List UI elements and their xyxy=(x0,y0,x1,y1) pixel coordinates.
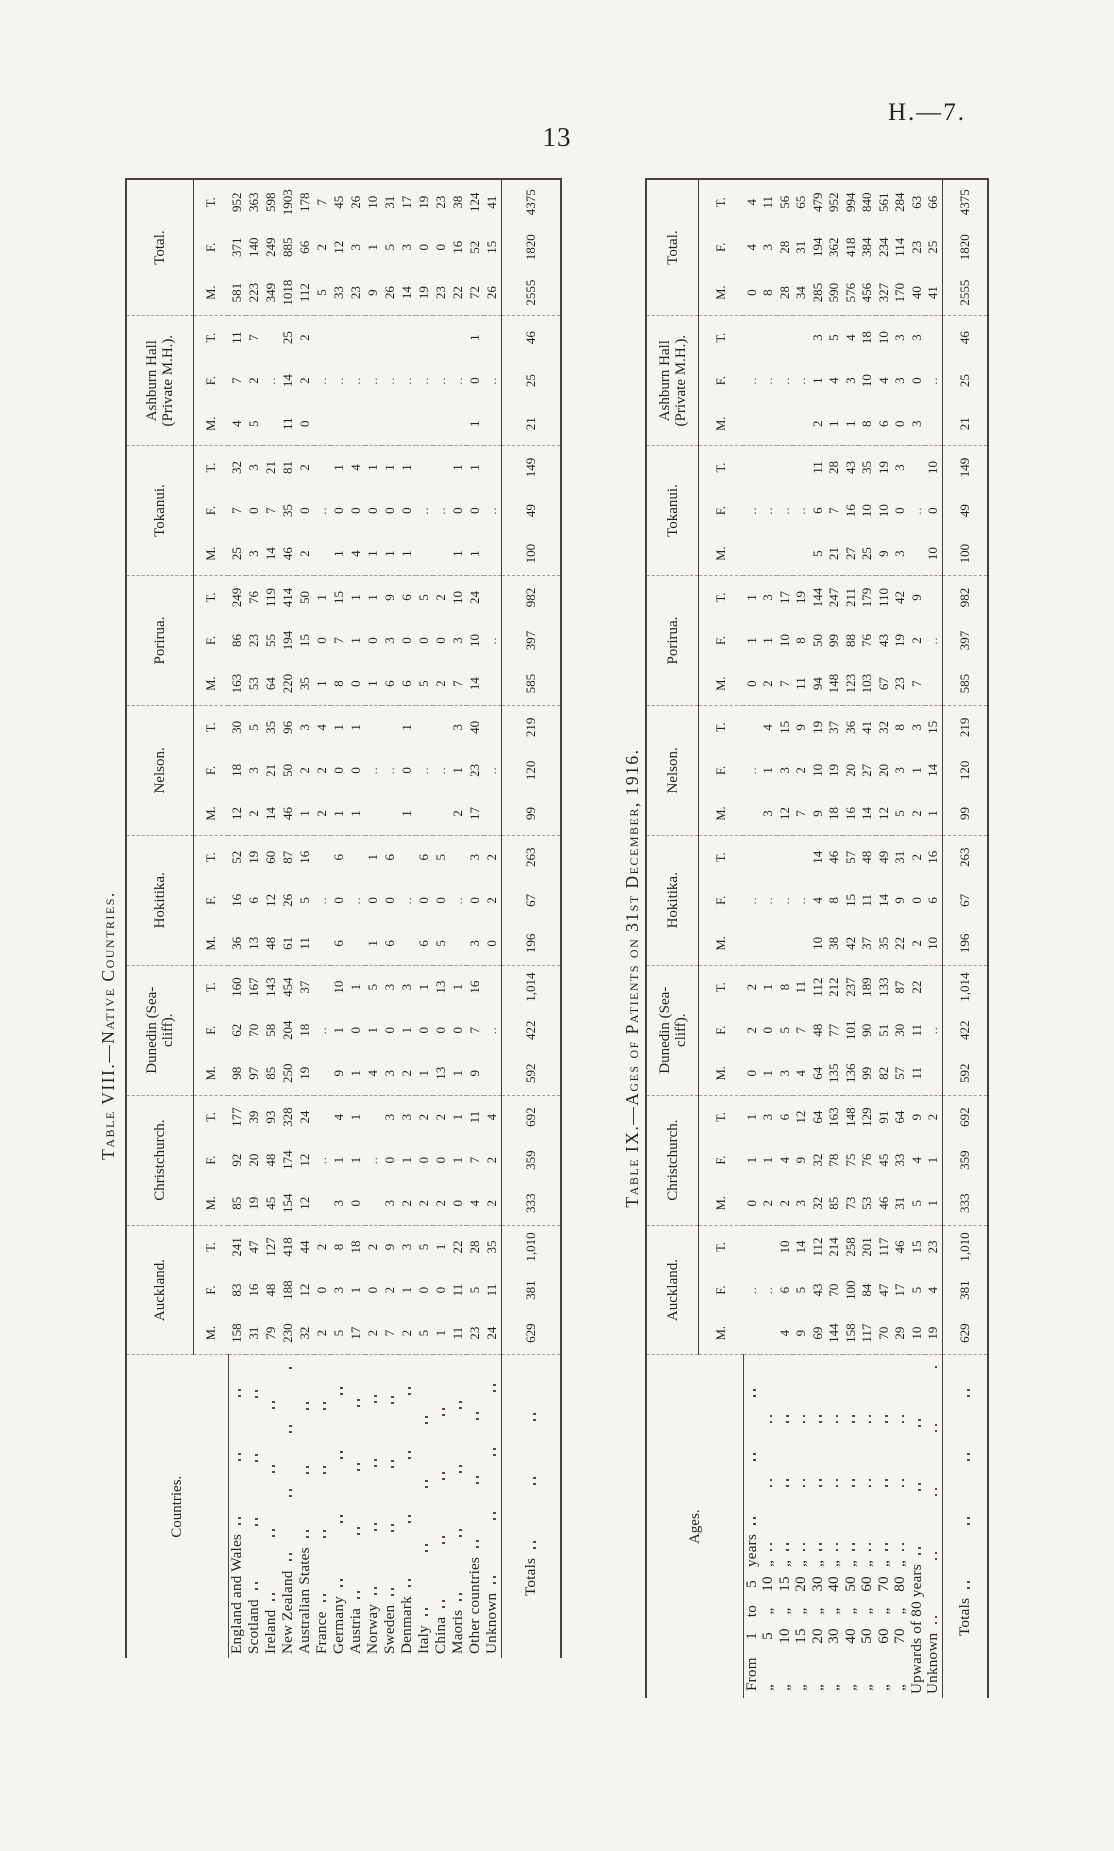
data-cell: 23 xyxy=(467,749,484,792)
data-cell: 8 xyxy=(793,619,810,662)
row-label-part: „ xyxy=(843,1599,859,1623)
data-cell: 1 xyxy=(743,619,760,662)
data-cell: 11 xyxy=(909,1052,926,1095)
data-cell: 9 xyxy=(810,792,827,835)
data-cell: 34 xyxy=(793,270,810,316)
data-cell: 237 xyxy=(843,965,860,1008)
data-cell: 48 xyxy=(263,1138,280,1181)
totals-cell: 1820 xyxy=(501,225,561,271)
data-cell: 4 xyxy=(793,1052,810,1095)
data-cell: 7 xyxy=(467,1009,484,1052)
data-cell: 241 xyxy=(228,1225,246,1268)
data-cell xyxy=(399,402,416,445)
data-cell: 75 xyxy=(843,1138,860,1181)
data-cell: 35 xyxy=(297,662,314,705)
data-cell: 1 xyxy=(450,1052,467,1095)
data-cell: 37 xyxy=(859,922,876,965)
row-label: From1to5years xyxy=(744,1356,760,1699)
row-label-text: Unknown xyxy=(484,1593,500,1654)
data-cell xyxy=(348,316,365,359)
data-cell: 2 xyxy=(743,965,760,1008)
row-label-part: „ xyxy=(826,1599,842,1623)
row-label-text: Germany xyxy=(331,1596,347,1654)
data-cell: .. xyxy=(314,1138,331,1181)
data-cell: 14 xyxy=(399,270,416,316)
data-cell: 952 xyxy=(228,179,246,225)
subcolumn-header: M. xyxy=(194,662,229,705)
data-cell: 952 xyxy=(826,179,843,225)
table-row: From1to5years..011022....011....044 xyxy=(743,179,760,1698)
data-cell: 23 xyxy=(348,270,365,316)
data-cell xyxy=(793,835,810,878)
subcolumn-header: F. xyxy=(699,619,744,662)
data-cell: 20 xyxy=(246,1138,263,1181)
row-label: „30„40„ xyxy=(826,1356,842,1699)
data-cell: 46 xyxy=(892,1225,909,1268)
dot-leader xyxy=(272,1366,275,1601)
data-cell xyxy=(450,835,467,878)
data-cell: 0 xyxy=(416,879,433,922)
data-cell: 41 xyxy=(859,705,876,748)
data-cell: 1 xyxy=(467,402,484,445)
data-cell: 247 xyxy=(826,576,843,619)
data-cell xyxy=(743,532,760,575)
data-cell: 53 xyxy=(246,662,263,705)
row-label-text: Totals xyxy=(522,1558,540,1596)
data-cell: 3 xyxy=(382,1095,399,1138)
table-row: Other countries2352847119716303172340141… xyxy=(467,179,484,1658)
totals-row: Totals6293811,0103333596925924221,014196… xyxy=(942,179,988,1698)
data-cell: 1 xyxy=(314,662,331,705)
subcolumn-header: F. xyxy=(194,359,229,402)
data-cell xyxy=(314,1052,331,1095)
data-cell: 133 xyxy=(876,965,893,1008)
data-cell: 10 xyxy=(467,619,484,662)
table-row: Denmark213213213..101606101..14317 xyxy=(399,179,416,1658)
column-header-total: Total. xyxy=(646,179,699,316)
data-cell: 55 xyxy=(263,619,280,662)
data-cell: 0 xyxy=(348,662,365,705)
data-cell: 3 xyxy=(246,446,263,489)
row-label-part: „ xyxy=(810,1560,826,1569)
data-cell: 561 xyxy=(876,179,893,225)
data-cell: 64 xyxy=(810,1095,827,1138)
data-cell: 2 xyxy=(314,792,331,835)
data-cell: 41 xyxy=(484,179,502,225)
data-cell: 35 xyxy=(280,489,297,532)
data-cell: 35 xyxy=(263,705,280,748)
totals-cell: 1,014 xyxy=(942,965,988,1008)
data-cell: 50 xyxy=(297,576,314,619)
data-cell xyxy=(365,792,382,835)
data-cell: 19 xyxy=(892,619,909,662)
data-cell: 96 xyxy=(280,705,297,748)
data-cell: 2 xyxy=(793,749,810,792)
column-header-tokanui: Tokanui. xyxy=(646,446,699,576)
blank-cell-dots: .. xyxy=(745,766,759,774)
data-cell: 1 xyxy=(348,576,365,619)
data-cell xyxy=(760,1312,777,1355)
data-cell: 31 xyxy=(892,835,909,878)
row-label-part: 40 xyxy=(826,1569,842,1599)
subcolumn-header: T. xyxy=(699,965,744,1008)
data-cell xyxy=(348,402,365,445)
row-label-part: 60 xyxy=(876,1623,892,1649)
data-cell: 4 xyxy=(348,446,365,489)
data-cell: 6 xyxy=(382,662,399,705)
column-header-ashburn: Ashburn Hall (Private M.H.). xyxy=(126,316,194,446)
data-cell xyxy=(760,1225,777,1268)
data-cell: 170 xyxy=(892,270,909,316)
data-cell: 3 xyxy=(892,359,909,402)
data-cell: 24 xyxy=(297,1095,314,1138)
data-cell: 1 xyxy=(925,792,942,835)
data-cell xyxy=(331,402,348,445)
data-cell: 10 xyxy=(450,576,467,619)
data-cell: 2 xyxy=(484,835,502,878)
data-cell: 35 xyxy=(859,446,876,489)
dot-leader xyxy=(819,1366,822,1552)
data-cell: 3 xyxy=(760,576,777,619)
data-cell: 6 xyxy=(331,922,348,965)
data-cell: 36 xyxy=(843,705,860,748)
data-cell: 85 xyxy=(263,1052,280,1095)
table-viii-title: Table VIII.—Native Countries. xyxy=(95,178,125,1658)
data-cell: 4 xyxy=(843,316,860,359)
data-cell: 201 xyxy=(859,1225,876,1268)
data-cell: 70 xyxy=(246,1009,263,1052)
data-cell: 33 xyxy=(892,1138,909,1181)
data-cell: 40 xyxy=(467,705,484,748)
data-cell: 15 xyxy=(331,576,348,619)
subcolumn-header: T. xyxy=(194,446,229,489)
data-cell xyxy=(263,316,280,359)
data-cell: 5 xyxy=(314,270,331,316)
data-cell: 2 xyxy=(314,1312,331,1355)
dot-leader xyxy=(836,1366,839,1552)
subcolumn-header: F. xyxy=(194,879,229,922)
data-cell: 479 xyxy=(810,179,827,225)
row-label-part: 70 xyxy=(892,1623,908,1649)
data-cell: 2 xyxy=(399,1052,416,1095)
totals-cell: 67 xyxy=(501,879,561,922)
data-cell: 25 xyxy=(859,532,876,575)
blank-cell-dots: .. xyxy=(400,896,414,904)
row-label-part: „ xyxy=(859,1560,875,1569)
row-label: Sweden xyxy=(382,1356,398,1659)
blank-cell-dots: .. xyxy=(926,637,940,645)
data-cell xyxy=(925,316,942,359)
data-cell: 9 xyxy=(793,1138,810,1181)
row-label: England and Wales xyxy=(229,1356,245,1659)
data-cell: 3 xyxy=(810,316,827,359)
data-cell: 9 xyxy=(331,1052,348,1095)
row-label: Italy xyxy=(416,1356,432,1659)
row-label-part: „ xyxy=(760,1599,776,1623)
data-cell: 3 xyxy=(331,1268,348,1311)
dot-leader xyxy=(425,1366,428,1617)
row-label: „40„50„ xyxy=(843,1356,859,1699)
data-cell: .. xyxy=(433,489,450,532)
data-cell: 327 xyxy=(876,270,893,316)
data-cell: 50 xyxy=(280,749,297,792)
column-header-auckland: Auckland. xyxy=(646,1225,699,1355)
totals-cell: 99 xyxy=(942,792,988,835)
subcolumn-header: M. xyxy=(699,270,744,316)
totals-cell: 2555 xyxy=(501,270,561,316)
data-cell: 46 xyxy=(826,835,843,878)
data-cell: 10 xyxy=(331,965,348,1008)
data-cell xyxy=(760,446,777,489)
subcolumn-header: T. xyxy=(194,576,229,619)
data-cell: .. xyxy=(433,749,450,792)
data-cell: 4 xyxy=(777,1138,794,1181)
data-cell: 19 xyxy=(246,835,263,878)
dot-leader xyxy=(902,1366,905,1552)
row-label-text: China xyxy=(433,1617,449,1654)
data-cell: 3 xyxy=(760,1095,777,1138)
data-cell xyxy=(925,965,942,1008)
data-cell: 3 xyxy=(382,1052,399,1095)
data-cell: 3 xyxy=(843,359,860,402)
data-cell: 5 xyxy=(416,576,433,619)
row-label-part: „ xyxy=(892,1649,908,1694)
data-cell xyxy=(416,446,433,489)
data-cell: 178 xyxy=(297,179,314,225)
row-label-text: New Zealand xyxy=(280,1570,296,1654)
data-cell xyxy=(365,705,382,748)
data-cell: .. xyxy=(925,1009,942,1052)
subcolumn-header: T. xyxy=(699,705,744,748)
row-label-part: „ xyxy=(793,1599,809,1623)
data-cell: 1 xyxy=(416,965,433,1008)
data-cell: 1 xyxy=(433,1312,450,1355)
data-cell: 1 xyxy=(467,532,484,575)
data-cell: 81 xyxy=(280,446,297,489)
data-cell: 1 xyxy=(399,1138,416,1181)
data-cell: 2 xyxy=(297,446,314,489)
data-cell: 18 xyxy=(826,792,843,835)
data-cell: 1 xyxy=(382,532,399,575)
totals-cell: 196 xyxy=(501,922,561,965)
row-label: Australian States xyxy=(297,1356,313,1659)
row-label: China xyxy=(433,1356,449,1659)
data-cell: 0 xyxy=(416,1138,433,1181)
data-cell: 41 xyxy=(925,270,942,316)
data-cell: 7 xyxy=(246,316,263,359)
data-cell: 101 xyxy=(843,1009,860,1052)
data-cell: 27 xyxy=(843,532,860,575)
data-cell xyxy=(382,402,399,445)
data-cell: 53 xyxy=(859,1182,876,1225)
totals-cell: 1,010 xyxy=(942,1225,988,1268)
totals-cell: 196 xyxy=(942,922,988,965)
dot-leader xyxy=(967,1366,970,1589)
data-cell xyxy=(365,1182,382,1225)
blank-cell-dots: .. xyxy=(745,1286,759,1294)
data-cell: 43 xyxy=(876,619,893,662)
dot-leader xyxy=(753,1366,756,1525)
data-cell: 4 xyxy=(777,1312,794,1355)
data-cell: 12 xyxy=(876,792,893,835)
data-cell xyxy=(416,316,433,359)
data-cell: 4 xyxy=(826,359,843,402)
data-cell: 598 xyxy=(263,179,280,225)
data-cell xyxy=(793,446,810,489)
data-cell xyxy=(484,1052,502,1095)
data-cell: 143 xyxy=(263,965,280,1008)
dot-leader xyxy=(323,1366,326,1603)
data-cell: 8 xyxy=(331,662,348,705)
data-cell: .. xyxy=(925,359,942,402)
data-cell: .. xyxy=(925,619,942,662)
data-cell: 1 xyxy=(365,446,382,489)
data-cell: 0 xyxy=(467,359,484,402)
data-cell: 177 xyxy=(228,1095,246,1138)
data-cell xyxy=(382,705,399,748)
data-cell: 17 xyxy=(777,576,794,619)
data-cell: 2 xyxy=(246,359,263,402)
data-cell: 284 xyxy=(892,179,909,225)
blank-cell-dots: .. xyxy=(315,1026,329,1034)
data-cell: 9 xyxy=(382,1225,399,1268)
totals-cell: 585 xyxy=(942,662,988,705)
data-cell: 148 xyxy=(826,662,843,705)
data-cell: 32 xyxy=(810,1138,827,1181)
data-cell: .. xyxy=(484,1009,502,1052)
data-cell: 14 xyxy=(263,792,280,835)
data-cell: .. xyxy=(314,359,331,402)
subcolumn-header: M. xyxy=(699,792,744,835)
subcolumn-header: M. xyxy=(194,270,229,316)
data-cell: 179 xyxy=(859,576,876,619)
data-cell: 1 xyxy=(760,1052,777,1095)
data-cell: 14 xyxy=(810,835,827,878)
data-cell: 2 xyxy=(433,1182,450,1225)
data-cell: 0 xyxy=(365,489,382,532)
data-cell: 4 xyxy=(467,1182,484,1225)
row-label-part: „ xyxy=(777,1599,793,1623)
row-label-part: „ xyxy=(760,1649,776,1694)
totals-cell: 982 xyxy=(942,576,988,619)
data-cell: 0 xyxy=(314,1268,331,1311)
totals-cell: 1,014 xyxy=(501,965,561,1008)
data-cell: .. xyxy=(743,749,760,792)
scanned-document-page: { "page": { "number": "13", "doc_ref": "… xyxy=(0,0,1114,1851)
data-cell xyxy=(777,316,794,359)
data-cell xyxy=(314,965,331,1008)
data-cell: 19 xyxy=(416,270,433,316)
data-cell: 1 xyxy=(365,576,382,619)
data-cell: 13 xyxy=(433,965,450,1008)
table-row: Norway202..415101..101101..9110 xyxy=(365,179,382,1658)
data-cell: 1903 xyxy=(280,179,297,225)
data-cell: 5 xyxy=(467,1268,484,1311)
data-cell: 1 xyxy=(365,662,382,705)
data-cell xyxy=(314,1182,331,1225)
data-cell: 57 xyxy=(892,1052,909,1095)
data-cell: 0 xyxy=(433,619,450,662)
table-row: „5„10„..213101..314213....8311 xyxy=(760,179,777,1698)
data-cell xyxy=(925,402,942,445)
row-label-part: „ xyxy=(810,1599,826,1623)
column-header-total: Total. xyxy=(126,179,194,316)
data-cell: 0 xyxy=(399,749,416,792)
data-cell: 129 xyxy=(859,1095,876,1138)
row-label-part: to xyxy=(744,1599,760,1623)
data-cell: 6 xyxy=(399,576,416,619)
data-cell: 2 xyxy=(297,316,314,359)
row-label-part: „ xyxy=(793,1560,809,1569)
data-cell: 21 xyxy=(263,749,280,792)
data-cell: 0 xyxy=(433,1268,450,1311)
data-cell: 1 xyxy=(348,1138,365,1181)
data-cell: 418 xyxy=(843,225,860,271)
data-cell: 47 xyxy=(246,1225,263,1268)
data-cell: 1018 xyxy=(280,270,297,316)
dot-leader xyxy=(374,1366,377,1595)
data-cell: 1 xyxy=(348,619,365,662)
row-label: Austria xyxy=(348,1356,364,1659)
column-header-auckland: Auckland. xyxy=(126,1225,194,1355)
data-cell: .. xyxy=(399,359,416,402)
data-cell xyxy=(314,835,331,878)
data-cell: 9 xyxy=(467,1052,484,1095)
row-label: „5„10„ xyxy=(760,1356,776,1699)
table-row: England and Wales15883241859217798621603… xyxy=(228,179,246,1658)
totals-cell: 422 xyxy=(501,1009,561,1052)
data-cell: 234 xyxy=(876,225,893,271)
subcolumn-header: F. xyxy=(194,749,229,792)
row-label-text: Upwards of 80 years xyxy=(909,1564,925,1694)
dot-leader xyxy=(770,1366,773,1552)
data-cell: 10 xyxy=(876,316,893,359)
data-cell: 136 xyxy=(843,1052,860,1095)
subcolumn-header: F. xyxy=(699,1009,744,1052)
data-cell: 362 xyxy=(826,225,843,271)
row-label: Unknown xyxy=(484,1356,500,1659)
row-label: „60„70„ xyxy=(876,1356,892,1699)
column-header-hokitika: Hokitika. xyxy=(646,835,699,965)
blank-cell-dots: .. xyxy=(366,377,380,385)
data-cell: 99 xyxy=(826,619,843,662)
data-cell: 1 xyxy=(331,792,348,835)
data-cell xyxy=(433,316,450,359)
data-cell xyxy=(314,316,331,359)
table-row: „70„80„291746313364573087229315382319423… xyxy=(892,179,909,1698)
data-cell: 3 xyxy=(777,749,794,792)
data-cell: 38 xyxy=(826,922,843,965)
data-cell: 17 xyxy=(467,792,484,835)
dot-leader xyxy=(238,1366,241,1526)
subcolumn-header: T. xyxy=(194,965,229,1008)
data-cell: 2 xyxy=(297,532,314,575)
totals-cell: 46 xyxy=(942,316,988,359)
data-cell: 5 xyxy=(416,1225,433,1268)
row-label-part: 60 xyxy=(859,1569,875,1599)
data-cell: 154 xyxy=(280,1182,297,1225)
data-cell: 1 xyxy=(760,749,777,792)
data-cell: 189 xyxy=(859,965,876,1008)
data-cell: 7 xyxy=(450,662,467,705)
data-cell: 1 xyxy=(399,1268,416,1311)
data-cell: 4 xyxy=(760,705,777,748)
blank-cell-dots: .. xyxy=(332,377,346,385)
data-cell: 12 xyxy=(297,1182,314,1225)
data-cell: 76 xyxy=(246,576,263,619)
data-cell xyxy=(484,662,502,705)
data-cell: 22 xyxy=(892,922,909,965)
